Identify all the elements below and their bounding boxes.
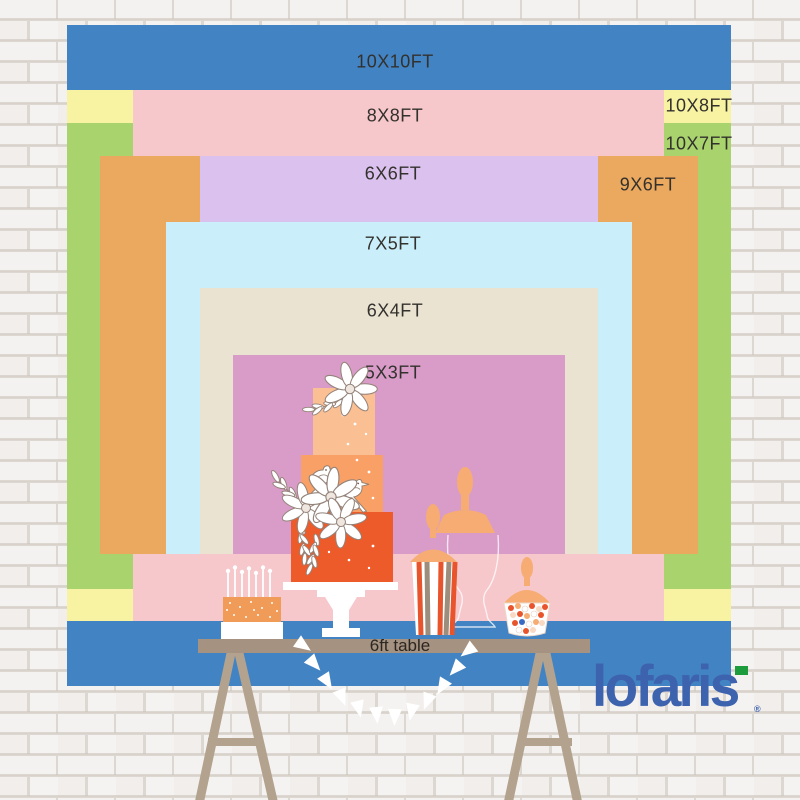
size-label-8x8ft: 8X8FT bbox=[367, 106, 424, 127]
table-crossbar-right bbox=[518, 738, 572, 746]
brand-logo-accent-icon bbox=[735, 666, 748, 675]
candle-cake-illustration bbox=[218, 565, 288, 640]
candy-jar-illustration bbox=[400, 455, 565, 640]
brand-logo-text: lofaris bbox=[592, 658, 737, 716]
size-label-10x8ft: 10X8FT bbox=[665, 96, 732, 117]
table-size-label: 6ft table bbox=[370, 636, 431, 656]
candy-bowl-icon bbox=[504, 557, 550, 636]
table-crossbar-left bbox=[208, 738, 262, 746]
size-label-10x7ft: 10X7FT bbox=[665, 134, 732, 155]
size-label-6x4ft: 6X4FT bbox=[367, 301, 424, 322]
backdrop-size-chart-image: 10X10FT 8X8FT 10X8FT 10X7FT 6X6FT 9X6FT … bbox=[0, 0, 800, 800]
size-label-10x10ft: 10X10FT bbox=[356, 52, 434, 73]
size-label-9x6ft: 9X6FT bbox=[620, 175, 677, 196]
size-label-7x5ft: 7X5FT bbox=[365, 234, 422, 255]
brand-logo: lofaris ® bbox=[592, 658, 782, 728]
registered-mark-icon: ® bbox=[754, 704, 761, 714]
size-label-6x6ft: 6X6FT bbox=[365, 164, 422, 185]
